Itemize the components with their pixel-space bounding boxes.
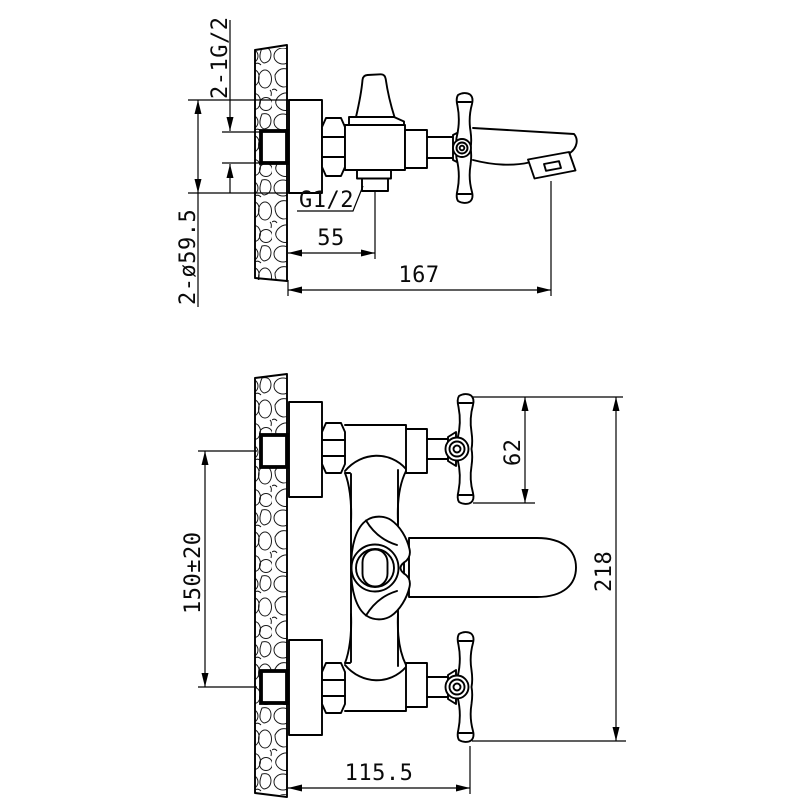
escutcheon-flange-bottom (289, 640, 322, 735)
hex-nut-top (322, 423, 345, 473)
aerator (528, 152, 576, 179)
elbow-top (345, 425, 427, 522)
technical-drawing-page: 2-1G/2 2-ø59.5 G1/2 55 167 (0, 0, 800, 800)
diverter-knob (351, 517, 410, 620)
inlet-square (261, 131, 287, 163)
front-view-drawing: 150±20 62 218 115.5 (181, 374, 626, 797)
faucet-technical-drawing: 2-1G/2 2-ø59.5 G1/2 55 167 (0, 0, 800, 800)
dim-spout-reach: 167 (398, 263, 439, 288)
dim-handle-reach: 115.5 (345, 761, 414, 786)
handle-knob (349, 74, 404, 125)
hex-nut (322, 118, 345, 176)
dim-flange-diameter: 2-ø59.5 (176, 209, 201, 305)
dim-inlet-spacing: 150±20 (181, 532, 206, 614)
inlet-square-bottom (261, 671, 287, 703)
inlet-square-top (261, 435, 287, 467)
dim-handle-height: 62 (501, 439, 526, 467)
dim-outlet-offset: 55 (317, 226, 345, 251)
hex-nut-bottom (322, 663, 345, 713)
cross-handle-side (453, 93, 472, 203)
valve-body (345, 125, 405, 170)
cross-handle-top (446, 394, 474, 504)
dim-outlet-thread: G1/2 (299, 188, 354, 213)
side-view-drawing: 2-1G/2 2-ø59.5 G1/2 55 167 (176, 17, 577, 307)
valve-body-neck (405, 130, 427, 168)
dim-overall-height: 218 (592, 551, 617, 592)
spout-front (409, 538, 576, 597)
cross-handle-bottom (446, 632, 474, 742)
elbow-bottom (345, 614, 427, 711)
dim-inlet-thread: 2-1G/2 (208, 17, 233, 99)
escutcheon-flange (289, 100, 322, 193)
escutcheon-flange-top (289, 402, 322, 497)
spout (473, 128, 577, 179)
